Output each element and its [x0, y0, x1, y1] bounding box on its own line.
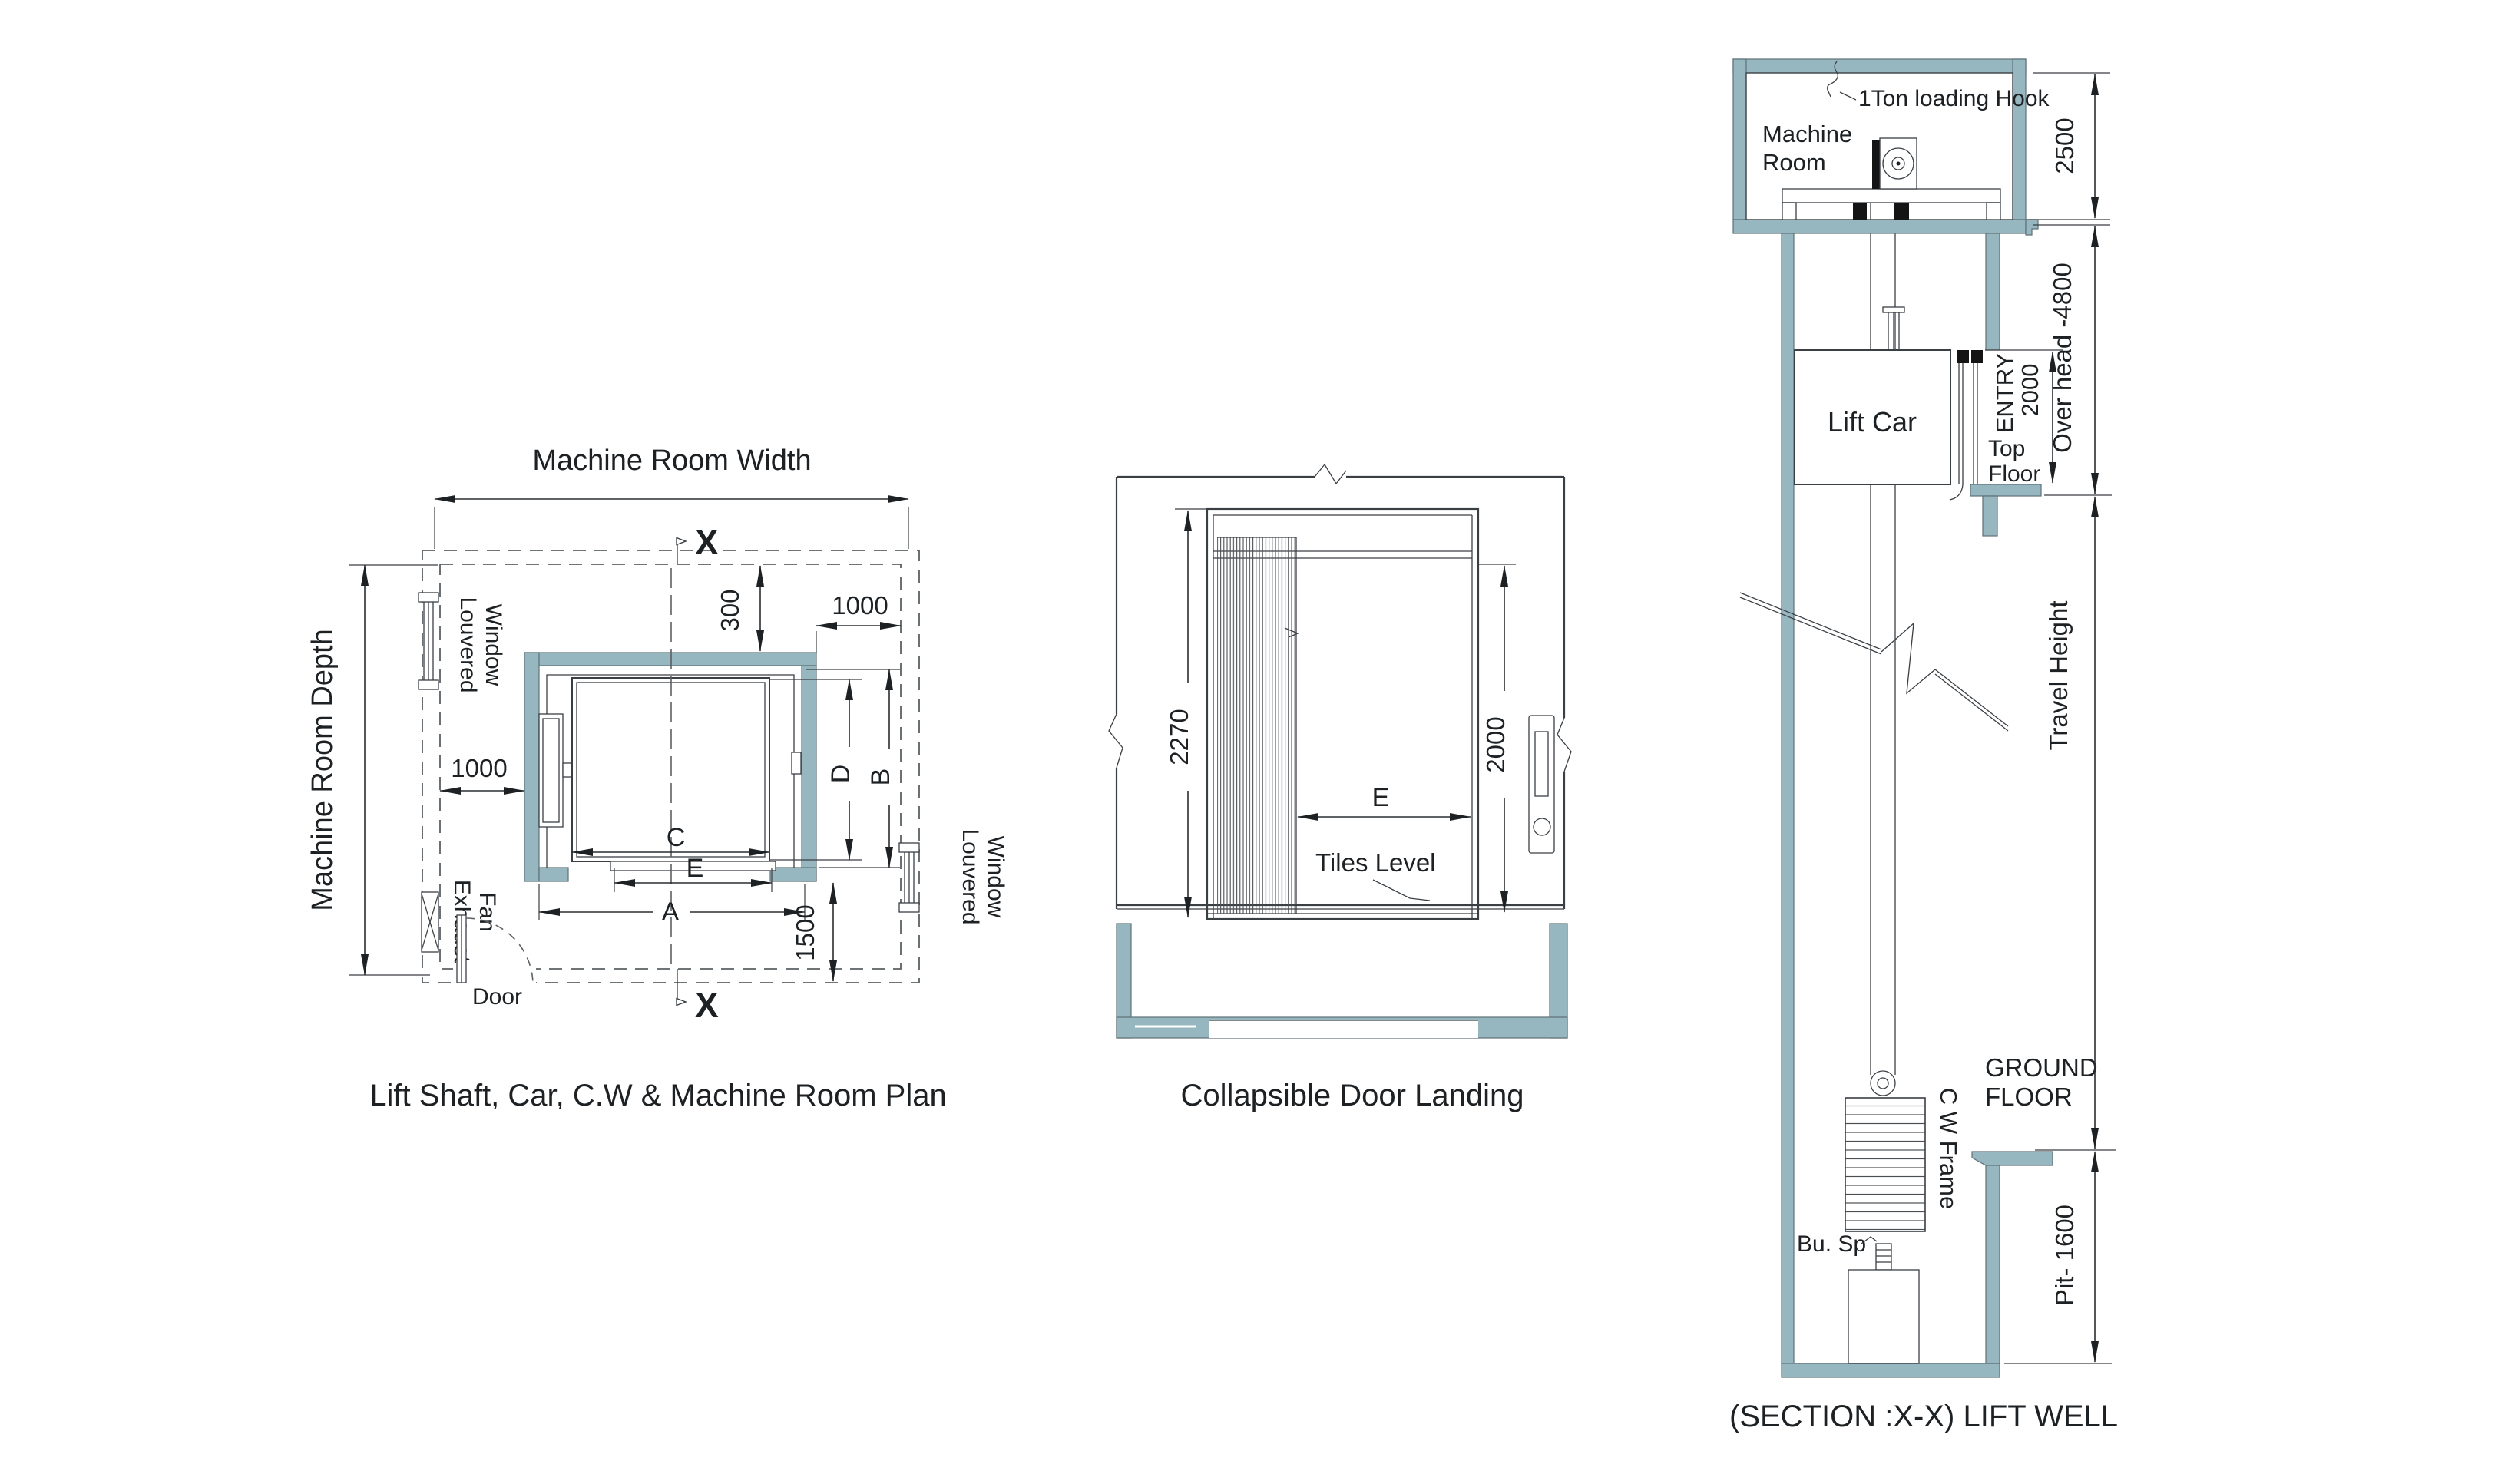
section-marker-bottom: X — [695, 985, 719, 1025]
car-rope-hitch — [1883, 307, 1904, 350]
svg-text:Tiles Level: Tiles Level — [1315, 848, 1436, 877]
svg-text:2500: 2500 — [2050, 117, 2079, 174]
louvered-window-right-label-2: Window — [983, 836, 1008, 918]
overhead-label: Over head -4800 — [2048, 263, 2076, 453]
hoist-ropes — [1871, 203, 1895, 1075]
entry-label: ENTRY — [1991, 353, 2018, 434]
svg-text:C: C — [667, 823, 686, 852]
louvered-window-left: Louvered Window — [419, 593, 506, 693]
entry-dim-label: 2000 — [2017, 364, 2043, 417]
break-line — [1740, 593, 2008, 731]
louvered-window-right-label-1: Louvered — [958, 828, 983, 924]
landing-wall-outline — [1109, 464, 1571, 909]
entry-door — [1950, 350, 1983, 500]
landing-view: 2270 2000 E Tiles Level Collapsible Door… — [1109, 464, 1571, 1112]
section-dimensions: 2500 Over head -4800 Travel Height Pit- … — [2004, 73, 2116, 1363]
section-marker-top: X — [695, 522, 719, 562]
landing-title: Collapsible Door Landing — [1181, 1079, 1524, 1112]
top-floor-label-2: Floor — [1988, 461, 2040, 487]
svg-text:1500: 1500 — [791, 904, 819, 960]
svg-text:2270: 2270 — [1165, 709, 1193, 765]
buffer-label: Bu. Sp — [1797, 1231, 1866, 1257]
machine-room-depth-label: Machine Room Depth — [306, 629, 339, 911]
counterweight-section — [1845, 1071, 1925, 1231]
counterweight-plan — [539, 714, 571, 827]
travel-height-label: Travel Height — [2044, 600, 2073, 750]
svg-text:E: E — [1372, 783, 1390, 812]
machine-room-width-label: Machine Room Width — [532, 445, 811, 477]
cw-frame-label: C W Frame — [1935, 1088, 1962, 1209]
collapsible-door — [1217, 537, 1298, 914]
plan-view: Machine Room Width Machine Room Depth — [306, 445, 1008, 1112]
top-floor-label-1: Top — [1988, 436, 2025, 461]
svg-text:1000: 1000 — [451, 754, 507, 782]
section-title: (SECTION :X-X) LIFT WELL — [1729, 1400, 2118, 1433]
svg-text:B: B — [866, 768, 895, 786]
louvered-window-right: Louvered Window — [899, 828, 1008, 924]
ground-floor-label-1: GROUND — [1985, 1053, 2098, 1082]
svg-text:D: D — [826, 765, 855, 784]
guide-bracket — [792, 752, 801, 774]
machine-room-label-1: Machine — [1762, 121, 1852, 147]
pit-dim-label: Pit- 1600 — [2050, 1205, 2079, 1306]
svg-text:2000: 2000 — [1481, 716, 1510, 772]
section-view: 1Ton loading Hook Machine Room — [1729, 59, 2118, 1433]
svg-text:E: E — [687, 854, 704, 883]
door-label: Door — [472, 984, 522, 1010]
plan-title: Lift Shaft, Car, C.W & Machine Room Plan — [369, 1079, 946, 1112]
svg-text:1000: 1000 — [832, 591, 888, 620]
lift-car-label: Lift Car — [1828, 406, 1917, 438]
hook-label: 1Ton loading Hook — [1858, 86, 2050, 111]
louvered-window-left-label-1: Louvered — [455, 597, 481, 692]
lift-car-section: Lift Car — [1795, 350, 1950, 484]
landing-sill-walls — [1117, 924, 1567, 1038]
tiles-level: Tiles Level — [1315, 848, 1436, 901]
ground-floor-label-2: FLOOR — [1985, 1082, 2073, 1111]
svg-text:A: A — [662, 897, 680, 927]
machine-room-label-2: Room — [1762, 149, 1826, 176]
louvered-window-left-label-2: Window — [481, 604, 506, 686]
lift-engineering-drawing: Machine Room Width Machine Room Depth — [0, 0, 2498, 1484]
svg-text:300: 300 — [716, 589, 744, 631]
call-button-panel — [1529, 716, 1554, 853]
